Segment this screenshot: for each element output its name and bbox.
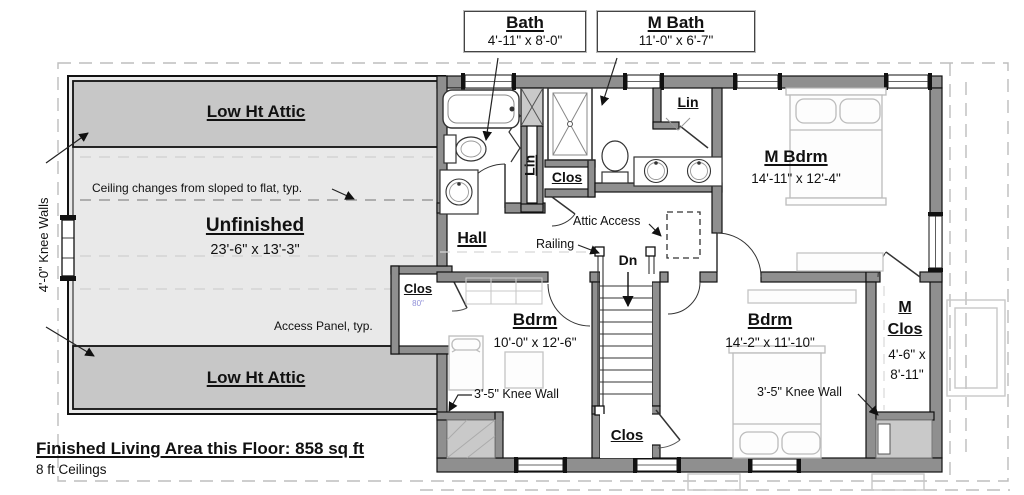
access-panel-note: Access Panel, typ. — [274, 320, 373, 333]
clos-left-dim: 80" — [412, 300, 424, 308]
hall-label: Hall — [457, 231, 486, 248]
clos-left-label: Clos — [404, 282, 432, 296]
callout-mbath-dims: 11'-0" x 6'-7" — [606, 33, 746, 48]
floorplan-page: Bath 4'-11" x 8'-0" M Bath 11'-0" x 6'-7… — [0, 0, 1024, 495]
bdrm1-nightstand — [505, 352, 543, 388]
callout-bath-dims: 4'-11" x 8'-0" — [473, 33, 577, 48]
mbath-toilet-tank — [602, 172, 628, 183]
ceiling-note: Ceiling changes from sloped to flat, typ… — [92, 182, 302, 195]
clos-stairs-label: Clos — [611, 428, 644, 444]
mclos-title-1: M — [898, 300, 911, 317]
finished-area-note: Finished Living Area this Floor: 858 sq … — [36, 440, 364, 458]
low-attic-top-label: Low Ht Attic — [207, 103, 306, 121]
ceiling-height-note: 8 ft Ceilings — [36, 463, 107, 477]
clos-mid-label: Clos — [552, 170, 582, 185]
attic-west-window — [60, 215, 76, 281]
callout-mbath-title: M Bath — [606, 13, 746, 33]
bdrm2-title: Bdrm — [748, 311, 792, 329]
mbdrm-dresser — [797, 253, 883, 271]
knee-walls-label: 4'-0" Knee Walls — [37, 160, 51, 330]
bath-toilet-tank — [444, 135, 456, 163]
bdrm1-title: Bdrm — [513, 311, 557, 329]
down-label: Dn — [619, 253, 638, 268]
bath-fixtures — [440, 90, 519, 214]
mbdrm-title: M Bdrm — [764, 148, 827, 166]
lin-bath-label: Lin — [523, 147, 538, 183]
railing-label: Railing — [536, 238, 574, 251]
mbdrm-dims: 14'-11" x 12'-4" — [751, 172, 841, 186]
knee-wall-note-1: 3'-5" Knee Wall — [474, 388, 559, 401]
callout-mbath: M Bath 11'-0" x 6'-7" — [597, 11, 755, 52]
knee-wall-note-2: 3'-5" Knee Wall — [757, 386, 842, 399]
mclos-dims-2: 8'-11" — [890, 368, 923, 382]
bdrm2-dresser — [748, 290, 856, 303]
callout-bath: Bath 4'-11" x 8'-0" — [464, 11, 586, 52]
mclos-dims-1: 4'-6" x — [888, 348, 925, 362]
attic-access-hatch — [667, 212, 700, 258]
floorplan-drawing — [0, 0, 1024, 495]
mbath-toilet-bowl — [602, 141, 628, 171]
attic-access-label: Attic Access — [573, 215, 640, 228]
mclos-title-2: Clos — [888, 322, 923, 339]
bdrm2-dims: 14'-2" x 11'-10" — [725, 336, 815, 350]
mbdrm-bed-headboard — [786, 88, 886, 95]
lin-mbath-label: Lin — [678, 95, 699, 110]
bdrm1-dims: 10'-0" x 12'-6" — [493, 336, 576, 350]
low-attic-bottom-label: Low Ht Attic — [207, 369, 306, 387]
unfinished-dims: 23'-6" x 13'-3" — [210, 243, 299, 258]
callout-bath-title: Bath — [473, 13, 577, 33]
unfinished-title: Unfinished — [206, 216, 304, 236]
